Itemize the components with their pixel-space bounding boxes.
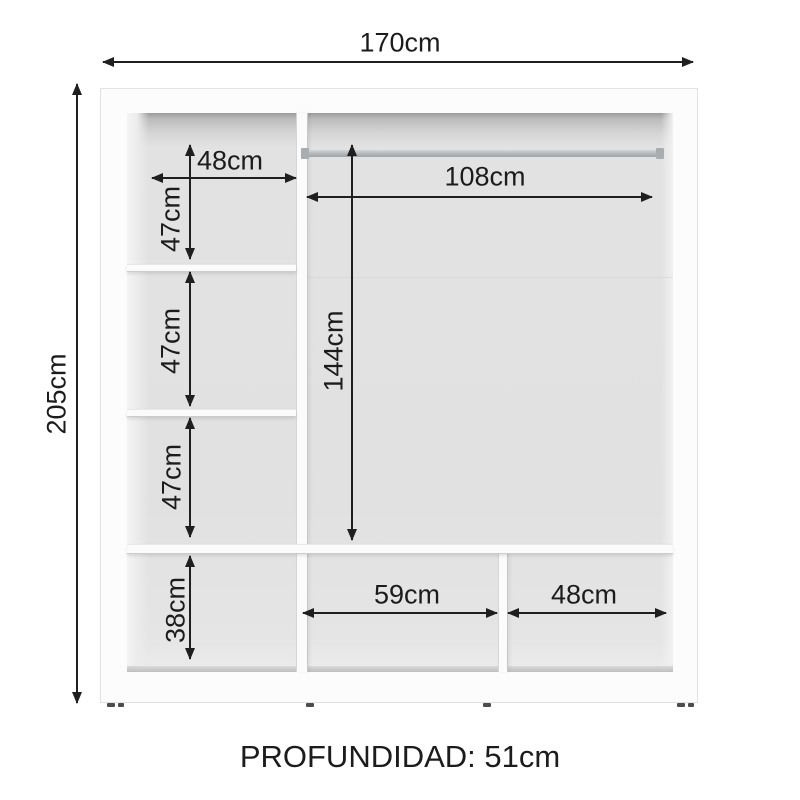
dim-arrow-overall-width xyxy=(103,61,693,63)
depth-label: PROFUNDIDAD: 51cm xyxy=(240,739,560,775)
dim-arrow-bottom-right-width xyxy=(508,612,666,614)
dim-arrow-hanging-height xyxy=(351,145,353,540)
cabinet-foot xyxy=(688,703,694,707)
interior-left-face xyxy=(127,113,149,672)
dim-label-overall-width: 170cm xyxy=(359,30,440,57)
left-shelf-1 xyxy=(127,264,296,272)
left-shelf-2 xyxy=(127,409,296,417)
cabinet-foot xyxy=(118,703,124,707)
rod-bracket-right xyxy=(656,148,664,159)
dim-label-bottom-right-width: 48cm xyxy=(551,582,617,609)
rod-bracket-left xyxy=(301,148,309,159)
dim-label-bottom-middle-width: 59cm xyxy=(374,582,440,609)
dim-label-left-comp-3: 47cm xyxy=(159,444,186,510)
dim-label-left-comp-2: 47cm xyxy=(158,308,185,374)
dim-arrow-left-comp-3 xyxy=(189,418,191,537)
dim-label-upper-left-width: 48cm xyxy=(197,148,263,175)
cabinet-foot xyxy=(306,703,314,707)
hanging-rod xyxy=(304,150,664,157)
dim-arrow-upper-left-width xyxy=(152,177,296,179)
cabinet-foot xyxy=(107,703,115,707)
dim-label-overall-height: 205cm xyxy=(44,353,71,434)
dim-arrow-overall-height xyxy=(76,84,78,703)
dim-label-rod-width: 108cm xyxy=(444,164,525,191)
dim-arrow-left-comp-2 xyxy=(189,272,191,406)
dim-label-left-comp-1: 47cm xyxy=(158,186,185,252)
bottom-shelf xyxy=(127,544,673,554)
back-panel-seam xyxy=(307,277,673,278)
dim-label-hanging-height: 144cm xyxy=(321,310,348,391)
interior-floor-shadow xyxy=(127,666,673,672)
dim-arrow-left-comp-1 xyxy=(189,145,191,259)
interior-right-face xyxy=(661,113,673,672)
dim-arrow-bottom-middle-width xyxy=(303,612,497,614)
cabinet-foot xyxy=(483,703,491,707)
cabinet-foot xyxy=(677,703,685,707)
dim-label-left-comp-4: 38cm xyxy=(163,577,190,643)
dim-arrow-rod-width xyxy=(307,196,652,198)
